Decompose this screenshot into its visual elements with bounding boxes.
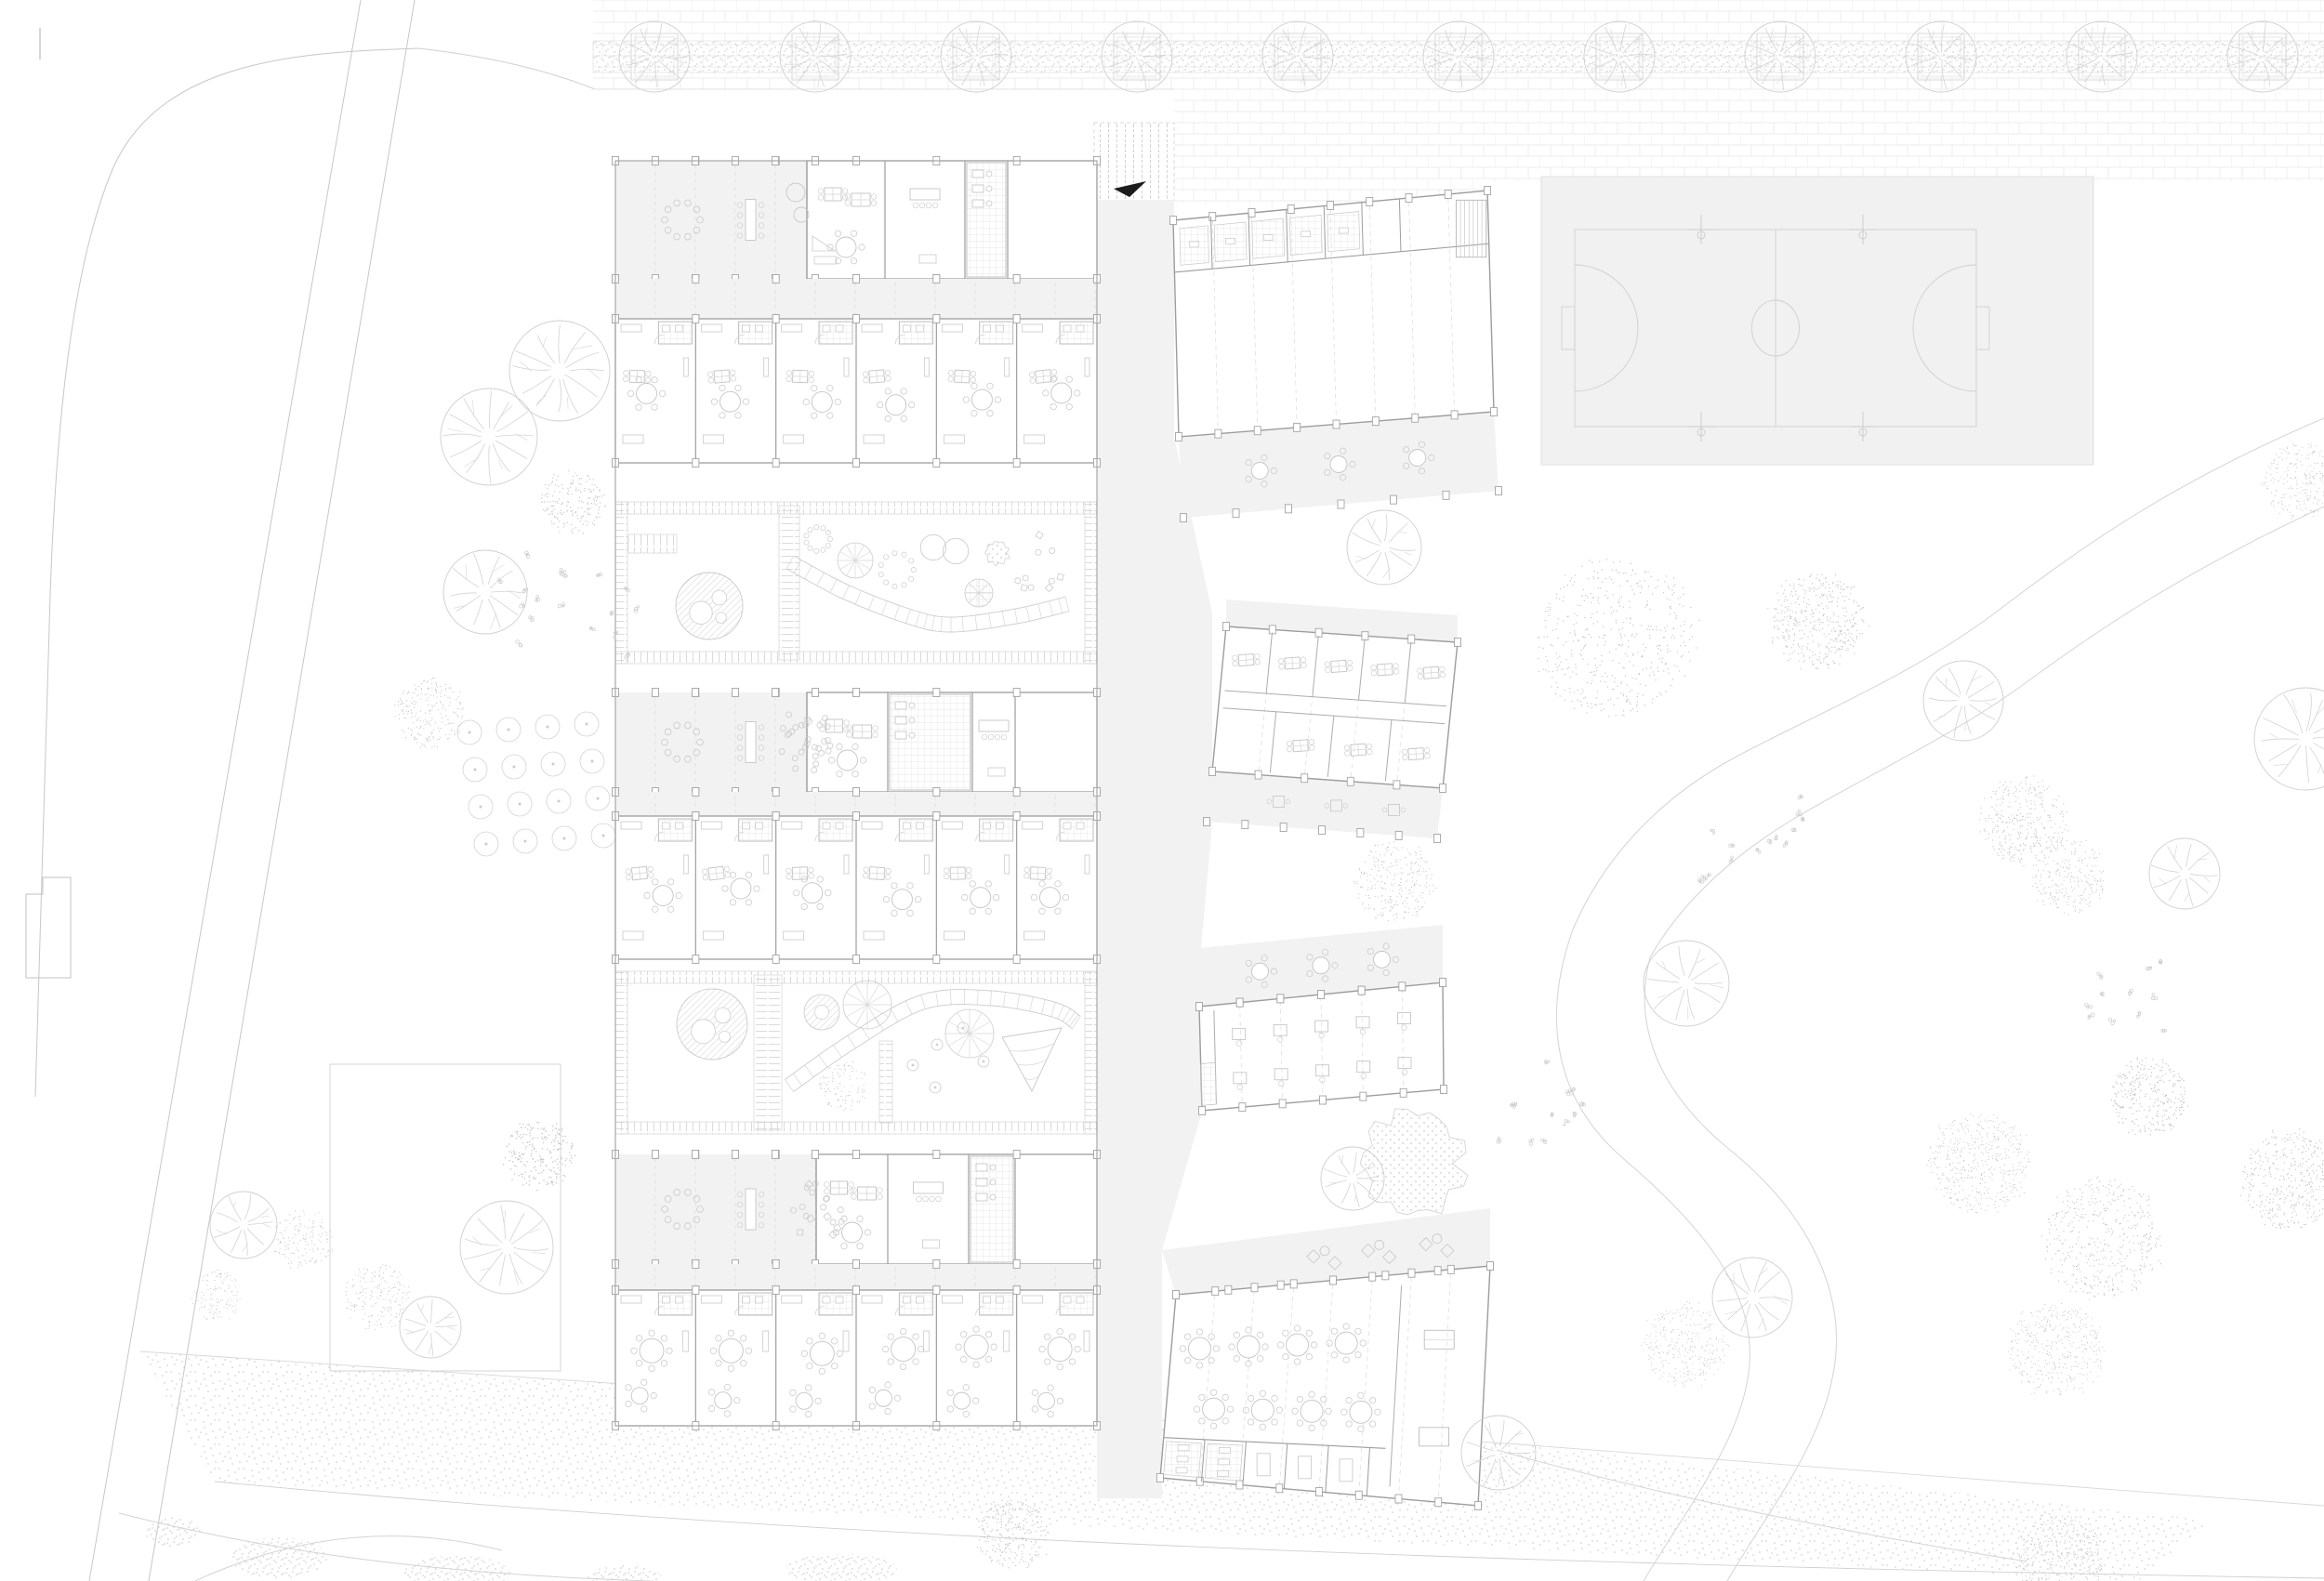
column-icon — [693, 1286, 699, 1295]
column-icon — [933, 788, 940, 797]
toilet-core — [1060, 322, 1093, 344]
toilet-core — [739, 1293, 772, 1315]
column-icon — [1355, 1491, 1362, 1499]
column-icon — [1173, 1291, 1180, 1299]
wing-1 — [1170, 187, 1502, 522]
column-icon — [1347, 777, 1353, 785]
toilet-core — [899, 1293, 932, 1315]
toilet-core — [739, 322, 772, 344]
toilet-core — [899, 322, 932, 344]
column-icon — [1367, 198, 1373, 206]
column-icon — [693, 315, 699, 323]
column-icon — [693, 275, 699, 283]
column-icon — [1176, 433, 1182, 441]
toilet-core — [980, 819, 1013, 841]
column-icon — [1013, 1260, 1020, 1269]
column-icon — [1408, 1269, 1415, 1277]
veranda-rooms-band — [613, 1151, 1101, 1269]
column-icon — [772, 1151, 779, 1159]
column-icon — [1357, 829, 1364, 837]
column-icon — [1280, 823, 1287, 832]
column-icon — [853, 689, 860, 697]
column-icon — [1447, 1265, 1454, 1273]
column-icon — [1157, 1474, 1164, 1482]
column-icon — [933, 812, 940, 821]
column-icon — [1279, 1100, 1286, 1108]
column-icon — [853, 1260, 860, 1269]
column-icon — [1225, 1285, 1232, 1294]
column-icon — [1204, 818, 1210, 826]
column-icon — [693, 812, 699, 821]
column-icon — [1358, 986, 1365, 995]
column-icon — [933, 1286, 940, 1295]
column-icon — [772, 1286, 779, 1295]
wing-outline — [1212, 626, 1458, 788]
column-icon — [1315, 628, 1322, 637]
paved-edge — [615, 1122, 1097, 1134]
column-icon — [693, 689, 699, 697]
site-plan — [0, 0, 2324, 1581]
column-icon — [933, 275, 940, 283]
column-icon — [772, 788, 779, 797]
column-icon — [1434, 1267, 1441, 1275]
paved-edge — [615, 502, 1097, 514]
wing-3 — [1196, 925, 1447, 1115]
toilet-core — [819, 322, 852, 344]
column-icon — [693, 955, 699, 964]
classrooms-band — [613, 812, 1101, 964]
column-icon — [1395, 1495, 1402, 1503]
column-icon — [1269, 626, 1275, 634]
column-icon — [933, 689, 940, 697]
classrooms-band — [613, 315, 1101, 468]
column-icon — [933, 1151, 940, 1159]
column-icon — [1290, 1280, 1297, 1288]
paved-edge — [615, 971, 1097, 983]
column-icon — [853, 1151, 860, 1159]
column-icon — [1391, 495, 1397, 504]
column-icon — [653, 689, 659, 697]
column-icon — [1013, 459, 1020, 468]
paved-edge — [615, 971, 627, 1134]
hedge-icon — [145, 1517, 201, 1547]
column-icon — [1255, 771, 1261, 779]
column-icon — [1013, 689, 1020, 697]
column-icon — [812, 1151, 819, 1159]
column-icon — [1239, 1103, 1246, 1112]
column-icon — [1013, 275, 1020, 283]
column-icon — [933, 955, 940, 964]
column-icon — [933, 315, 940, 323]
column-icon — [693, 1151, 699, 1159]
column-icon — [1455, 639, 1461, 647]
column-icon — [1330, 1276, 1337, 1285]
column-icon — [772, 315, 779, 323]
wc-room — [1201, 1062, 1217, 1105]
column-icon — [1445, 191, 1451, 199]
column-icon — [1013, 1151, 1020, 1159]
column-icon — [1485, 187, 1491, 195]
column-icon — [1286, 505, 1292, 513]
toilet-core — [658, 1293, 692, 1315]
column-icon — [1338, 500, 1344, 508]
column-icon — [1451, 411, 1458, 419]
column-icon — [1248, 209, 1255, 217]
column-icon — [1212, 1287, 1219, 1296]
column-icon — [1013, 788, 1020, 797]
column-icon — [853, 812, 860, 821]
column-icon — [1320, 1096, 1327, 1104]
column-icon — [1294, 423, 1301, 431]
column-icon — [1301, 774, 1308, 783]
site-plan-svg — [0, 0, 2324, 1581]
column-icon — [1233, 509, 1239, 518]
toilet-core — [1060, 1293, 1093, 1315]
column-icon — [1013, 812, 1020, 821]
column-icon — [693, 459, 699, 468]
column-icon — [853, 459, 860, 468]
column-icon — [772, 275, 779, 283]
wc-room — [971, 1156, 1013, 1262]
hedge-icon — [231, 1537, 327, 1578]
toilet-core — [658, 322, 692, 344]
toilet-core — [658, 819, 692, 841]
column-icon — [933, 1260, 940, 1269]
column-icon — [1434, 835, 1441, 843]
toilet-core — [819, 1293, 852, 1315]
column-icon — [1382, 1271, 1389, 1280]
toilet-core — [819, 819, 852, 841]
courtyard-band — [615, 502, 1097, 664]
column-icon — [1441, 1086, 1447, 1094]
column-icon — [1487, 1262, 1494, 1271]
column-icon — [1223, 623, 1230, 631]
column-icon — [693, 1260, 699, 1269]
veranda-deck — [615, 1154, 816, 1264]
column-icon — [853, 955, 860, 964]
field-surface — [1541, 177, 2093, 465]
column-icon — [1316, 1488, 1323, 1496]
column-icon — [1412, 414, 1419, 422]
toilet-core — [980, 322, 1013, 344]
column-icon — [1362, 632, 1368, 640]
veranda-deck — [615, 161, 807, 279]
column-icon — [1395, 832, 1402, 840]
column-icon — [1435, 1498, 1442, 1507]
column-icon — [853, 315, 860, 323]
toilet-core — [739, 819, 772, 841]
column-icon — [1406, 194, 1412, 203]
column-icon — [1170, 217, 1177, 225]
column-icon — [1196, 1003, 1203, 1011]
column-icon — [1277, 1281, 1284, 1289]
column-icon — [1400, 1088, 1406, 1097]
column-icon — [1475, 1502, 1482, 1510]
column-icon — [1199, 1107, 1206, 1115]
column-icon — [1013, 315, 1020, 323]
column-icon — [733, 1151, 739, 1159]
column-icon — [1393, 781, 1400, 789]
sports-field — [1541, 177, 2093, 465]
column-icon — [772, 459, 779, 468]
column-icon — [1399, 982, 1406, 991]
column-icon — [1013, 1286, 1020, 1295]
wing-4 — [1157, 1208, 1494, 1510]
veranda-rooms-band — [613, 689, 1101, 797]
column-icon — [1360, 1092, 1367, 1100]
wing-2 — [1204, 599, 1461, 843]
column-icon — [1496, 487, 1502, 495]
courtyard-band — [615, 971, 1097, 1134]
column-icon — [1491, 408, 1498, 416]
column-icon — [1327, 202, 1334, 210]
column-icon — [1318, 991, 1325, 999]
column-icon — [1013, 955, 1020, 964]
toilet-core — [980, 1293, 1013, 1315]
site-plan-canvas — [0, 0, 2324, 1581]
column-icon — [1254, 427, 1261, 435]
toilet-core — [899, 819, 932, 841]
column-icon — [1372, 417, 1379, 426]
column-icon — [1443, 491, 1449, 499]
column-icon — [772, 812, 779, 821]
column-icon — [1369, 1272, 1376, 1281]
column-icon — [733, 689, 739, 697]
column-icon — [1440, 784, 1446, 793]
column-icon — [653, 1151, 659, 1159]
column-icon — [1236, 998, 1243, 1007]
veranda-rooms-band — [613, 157, 1101, 283]
column-icon — [1319, 826, 1326, 835]
paved-edge — [1085, 502, 1097, 664]
column-icon — [812, 689, 819, 697]
column-icon — [772, 689, 779, 697]
wc-room — [967, 163, 1006, 277]
column-icon — [853, 1286, 860, 1295]
column-icon — [1209, 768, 1216, 776]
paved-edge — [615, 502, 627, 664]
column-icon — [1242, 821, 1248, 829]
column-icon — [1209, 213, 1216, 221]
column-icon — [1277, 995, 1284, 1003]
toilet-core — [1060, 819, 1093, 841]
column-icon — [933, 459, 940, 468]
paved-edge — [1085, 971, 1097, 1134]
veranda-deck — [615, 692, 807, 792]
column-icon — [772, 1260, 779, 1269]
classrooms-band — [613, 1286, 1101, 1430]
column-icon — [1287, 205, 1294, 214]
column-icon — [1236, 1481, 1243, 1489]
main-building — [613, 157, 1101, 1430]
column-icon — [1333, 420, 1340, 428]
column-icon — [1276, 1484, 1283, 1493]
column-icon — [1215, 429, 1221, 438]
column-icon — [693, 788, 699, 797]
brick-apron — [1174, 89, 2324, 181]
column-icon — [1440, 979, 1446, 987]
column-icon — [772, 955, 779, 964]
column-icon — [1181, 514, 1187, 522]
column-icon — [853, 275, 860, 283]
planting-strip — [593, 41, 2324, 72]
paved-edge — [615, 652, 1097, 664]
column-icon — [853, 788, 860, 797]
column-icon — [1408, 635, 1415, 643]
column-icon — [1251, 1284, 1258, 1292]
